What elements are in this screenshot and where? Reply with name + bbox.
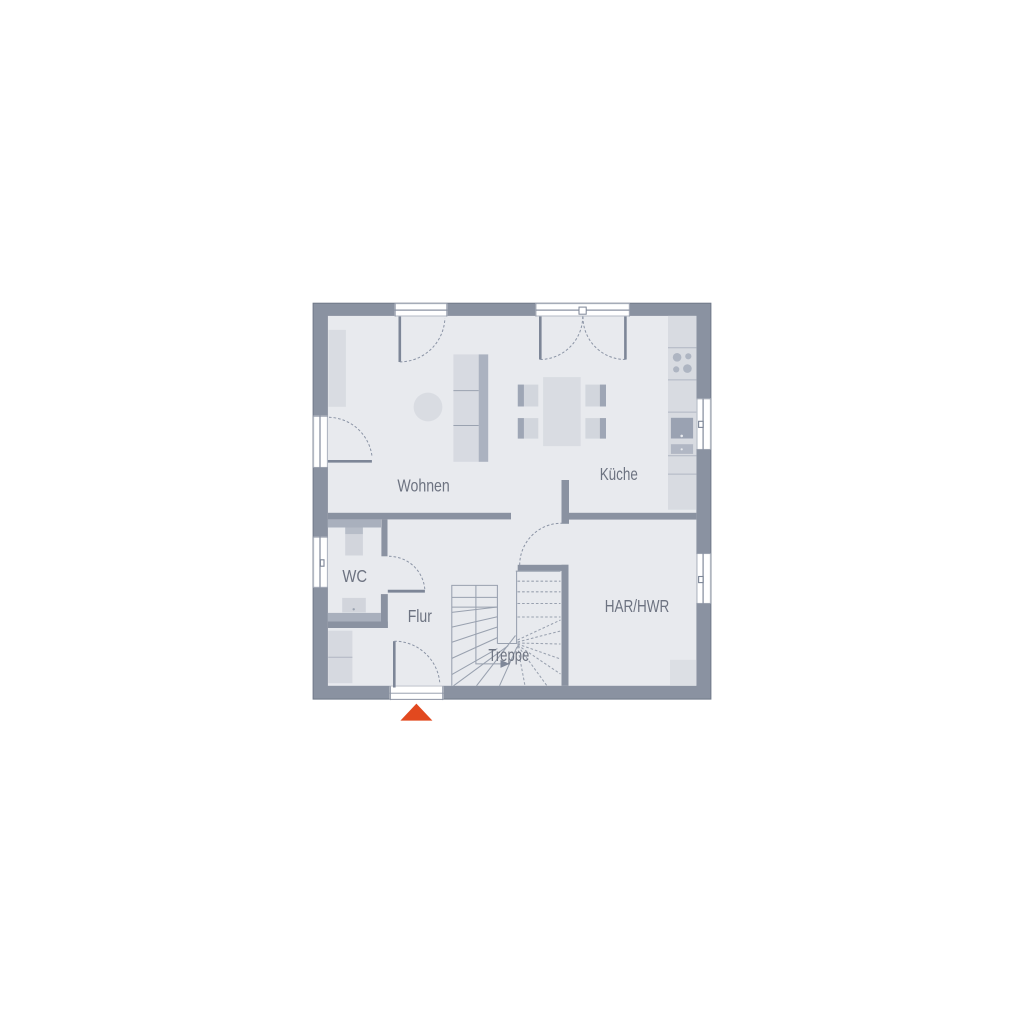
svg-text:Küche: Küche xyxy=(600,464,638,484)
svg-text:WC: WC xyxy=(342,566,367,586)
svg-text:HAR/HWR: HAR/HWR xyxy=(605,596,670,616)
svg-text:Wohnen: Wohnen xyxy=(397,476,449,496)
svg-text:Treppe: Treppe xyxy=(488,645,529,665)
svg-text:Flur: Flur xyxy=(408,606,432,626)
